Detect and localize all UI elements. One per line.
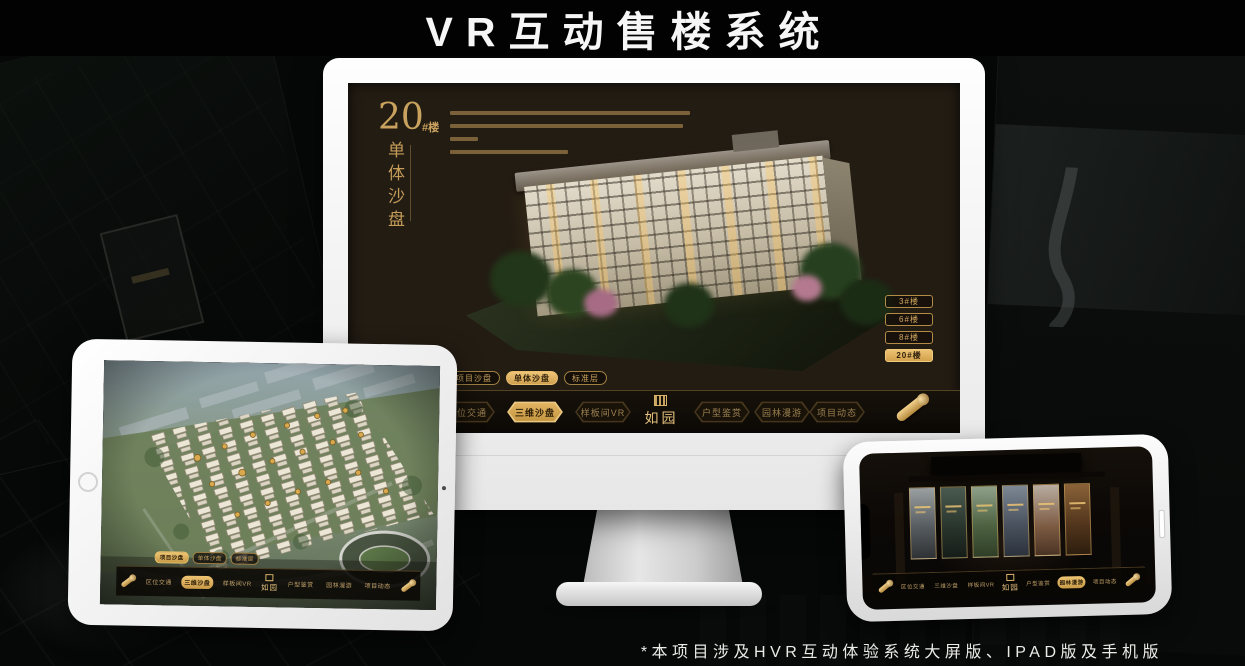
gallery-card[interactable] — [1002, 484, 1030, 557]
card-caption-marks — [914, 506, 931, 508]
background-aerial-band — [988, 124, 1245, 316]
floor-button-20[interactable]: 20#楼 — [885, 349, 933, 362]
speaker-slot — [1159, 510, 1166, 538]
nav-item-3d-sandtable[interactable]: 三维沙盘 — [932, 579, 960, 592]
nav-item-location[interactable]: 区位交通 — [899, 580, 927, 593]
tree — [490, 251, 552, 307]
card-caption-marks — [945, 505, 962, 507]
brand-logo: 如园 — [632, 395, 688, 428]
background-certificate — [100, 214, 205, 342]
nav-item-unit-plans[interactable]: 户型鉴赏 — [285, 577, 317, 591]
nav-item-unit-plans[interactable]: 户型鉴赏 — [690, 401, 754, 423]
nav-item-unit-plans[interactable]: 户型鉴赏 — [1024, 576, 1052, 589]
nav-item-showroom-vr[interactable]: 样板间VR — [966, 578, 997, 591]
tablet-screen: 项目沙盘 单体沙盘 标准层 区位交通 三维沙盘 样板间VR 如园 户型鉴赏 园林… — [100, 360, 440, 610]
tab-single-sandtable[interactable]: 单体沙盘 — [506, 371, 558, 385]
gallery-card[interactable] — [940, 486, 968, 559]
card-caption-marks — [1007, 504, 1024, 506]
nav-item-location[interactable]: 区位交通 — [143, 575, 175, 589]
scroll-icon[interactable] — [1125, 573, 1141, 587]
tablet-device: 项目沙盘 单体沙盘 标准层 区位交通 三维沙盘 样板间VR 如园 户型鉴赏 园林… — [68, 339, 458, 632]
brand-logo: 如园 — [261, 574, 278, 593]
camera-dot — [442, 486, 446, 490]
scroll-icon[interactable] — [878, 580, 894, 594]
floor-button-6[interactable]: 6#楼 — [885, 313, 933, 326]
footnote-text: *本项目涉及HVR互动体验系统大屏版、IPAD版及手机版 — [641, 638, 1163, 662]
main-nav-bar: 区位交通 三维沙盘 样板间VR 如园 户型鉴赏 园林漫游 项目动态 — [116, 565, 420, 600]
view-tab-group: 项目沙盘 单体沙盘 标准层 — [448, 371, 607, 385]
floor-button-3[interactable]: 3#楼 — [885, 295, 933, 308]
brand-logo: 如园 — [1002, 574, 1019, 593]
seal-icon — [654, 395, 667, 406]
blossom-tree — [584, 289, 618, 317]
phone-screen: 区位交通 三维沙盘 样板间VR 如园 户型鉴赏 园林漫游 项目动态 — [859, 446, 1156, 610]
card-caption-marks — [976, 505, 993, 507]
phone-notch — [860, 504, 870, 560]
seal-icon — [266, 574, 274, 581]
floor-button-8[interactable]: 8#楼 — [885, 331, 933, 344]
nav-item-garden-tour[interactable]: 园林漫游 — [323, 578, 355, 592]
nav-item-3d-sandtable[interactable]: 三维沙盘 — [181, 576, 213, 590]
home-button[interactable] — [78, 472, 98, 492]
page: VR互动售楼系统 20 #楼 单体沙盘 — [0, 0, 1245, 666]
nav-item-showroom-vr[interactable]: 样板间VR — [571, 401, 635, 423]
pillar-silhouette — [1110, 487, 1121, 579]
card-caption-marks — [1069, 502, 1086, 504]
monitor-stand-neck — [583, 508, 743, 586]
scroll-icon[interactable] — [400, 579, 416, 593]
monitor-stand-foot — [556, 582, 762, 606]
blossom-tree — [792, 275, 822, 301]
nav-item-3d-sandtable[interactable]: 三维沙盘 — [503, 401, 567, 423]
tab-single-sandtable[interactable]: 单体沙盘 — [193, 552, 227, 565]
nav-item-project-news[interactable]: 项目动态 — [362, 579, 394, 593]
tab-standard-floor[interactable]: 标准层 — [564, 371, 607, 385]
gallery-card[interactable] — [1033, 484, 1061, 557]
nav-item-project-news[interactable]: 项目动态 — [1091, 575, 1119, 588]
gallery-card[interactable] — [971, 485, 999, 558]
phone-device: 区位交通 三维沙盘 样板间VR 如园 户型鉴赏 园林漫游 项目动态 — [843, 434, 1173, 622]
nav-item-showroom-vr[interactable]: 样板间VR — [220, 576, 255, 590]
title-banner: VR互动售楼系统 — [0, 0, 1245, 56]
view-tab-group: 项目沙盘 单体沙盘 标准层 — [155, 551, 259, 565]
background-river — [1005, 165, 1192, 333]
nav-item-garden-tour[interactable]: 园林漫游 — [1057, 575, 1085, 588]
scroll-icon[interactable] — [120, 574, 136, 588]
gallery-card[interactable] — [909, 487, 937, 560]
certificate-text — [131, 268, 170, 284]
nav-item-project-news[interactable]: 项目动态 — [805, 401, 869, 423]
floor-button-group: 3#楼 6#楼 8#楼 20#楼 — [885, 295, 933, 367]
seal-icon — [1006, 574, 1014, 581]
scroll-icon[interactable] — [895, 393, 930, 423]
tab-standard-floor[interactable]: 标准层 — [231, 552, 259, 564]
card-caption-marks — [1038, 503, 1055, 505]
tree — [664, 283, 714, 327]
gallery-card[interactable] — [1064, 483, 1092, 556]
page-title: VR互动售楼系统 — [413, 0, 833, 58]
scene-gallery — [909, 483, 1092, 560]
tab-project-sandtable[interactable]: 项目沙盘 — [155, 551, 189, 564]
